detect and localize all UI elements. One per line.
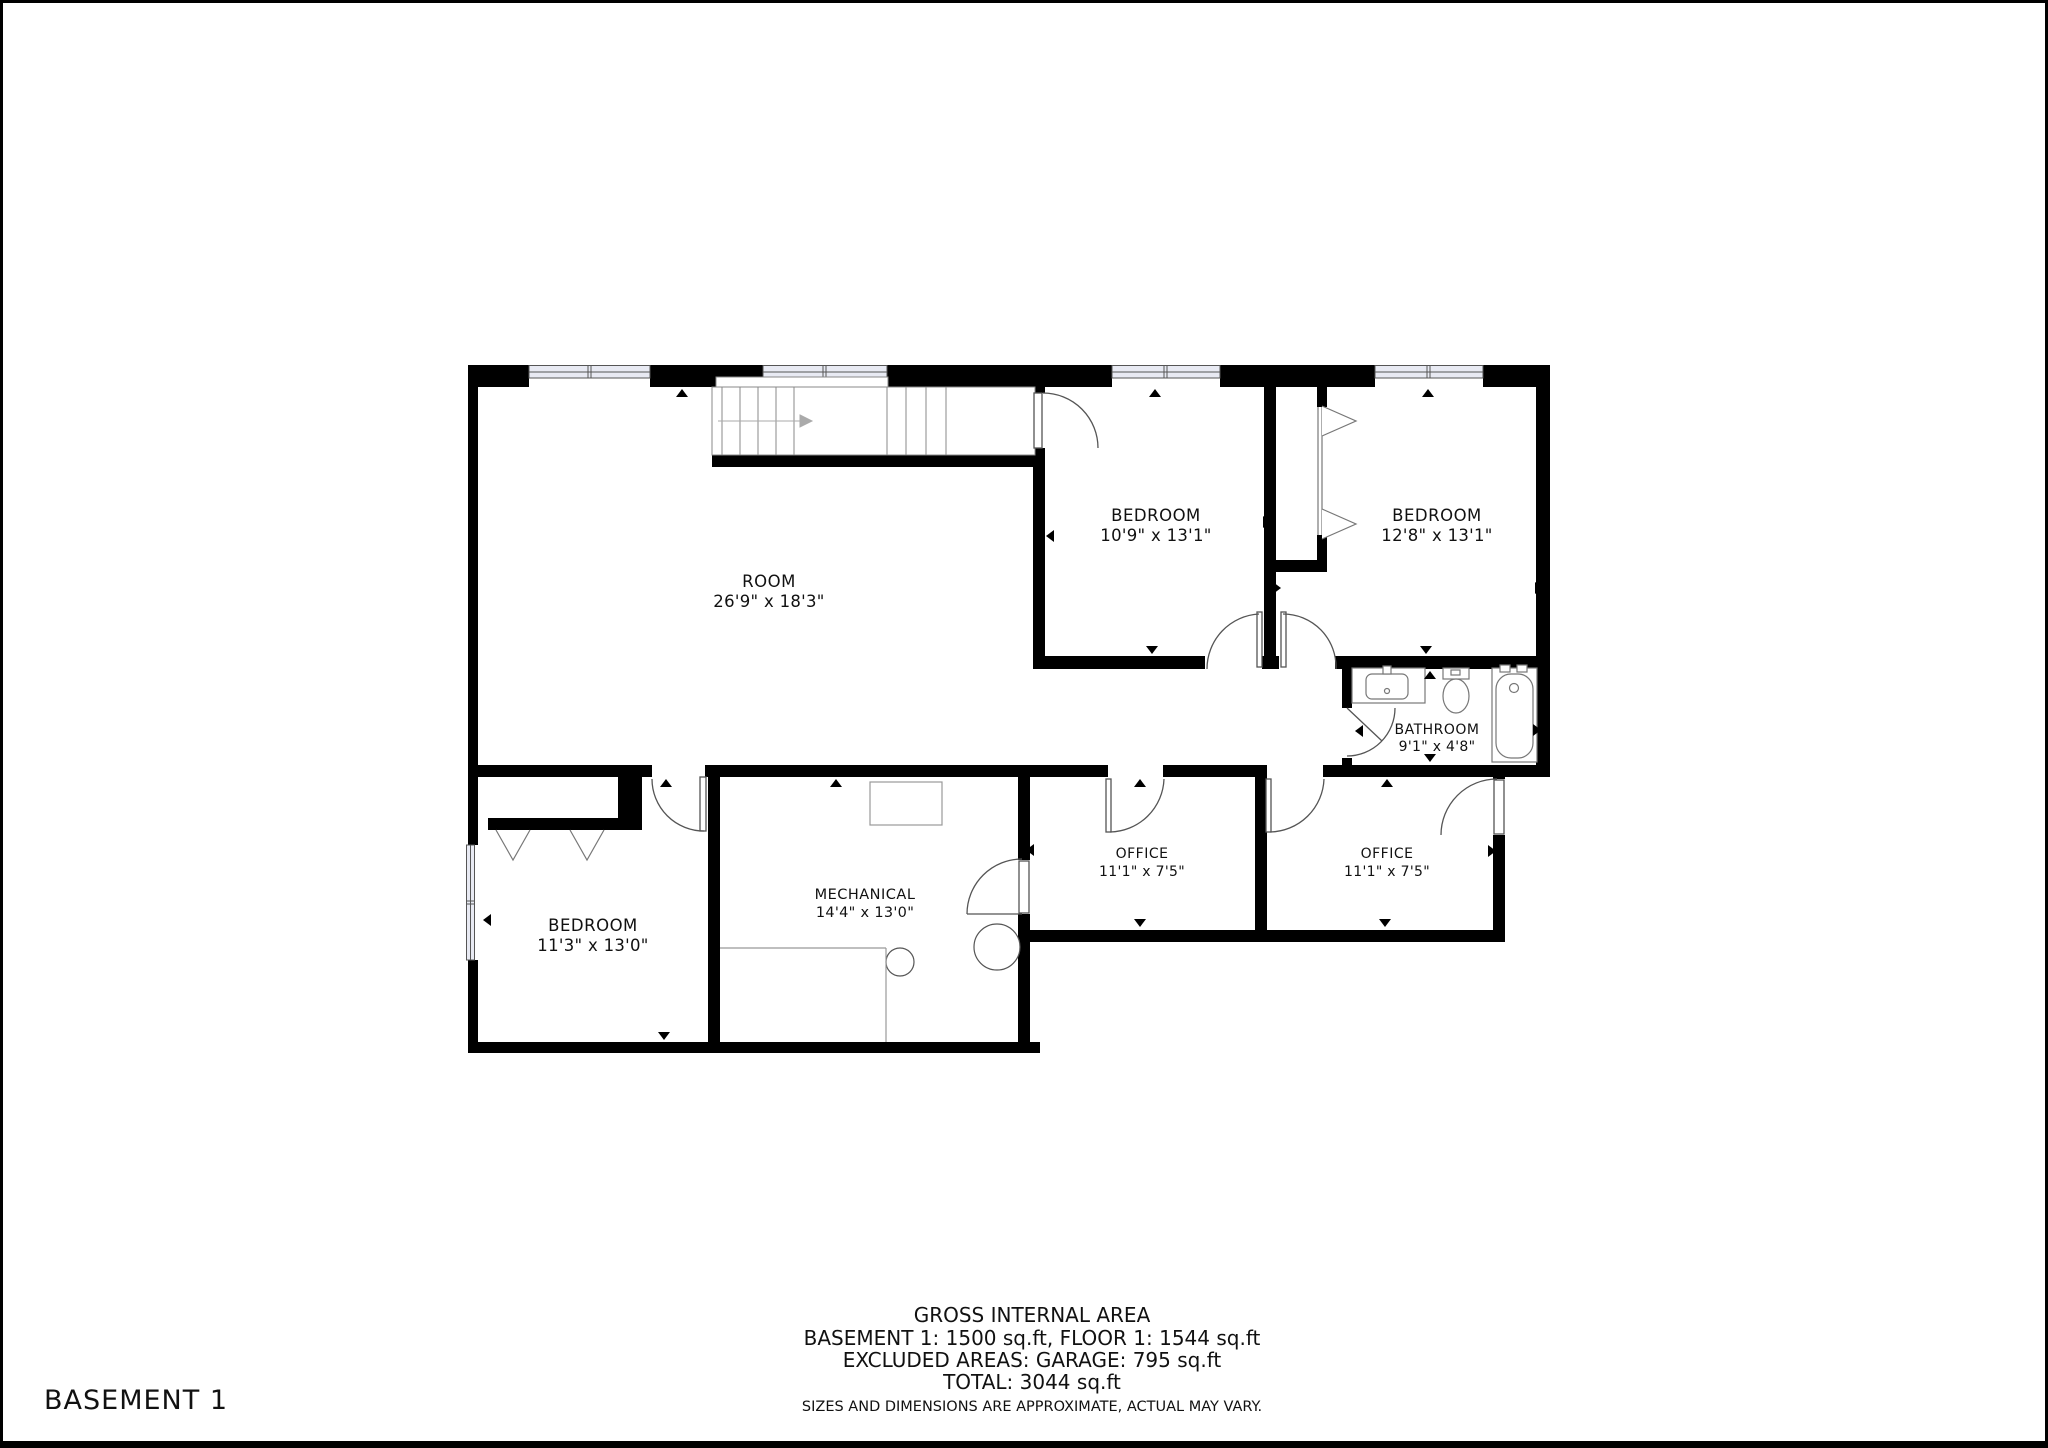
window-icon — [763, 366, 887, 379]
door-icon — [1207, 612, 1262, 669]
stairs-icon — [712, 377, 1035, 455]
room-label-bathroom: BATHROOM 9'1" x 4'8" — [1394, 722, 1479, 755]
room-dims: 11'3" x 13'0" — [537, 936, 648, 955]
room-dims: 26'9" x 18'3" — [713, 592, 824, 611]
room-label-bedroom-2: BEDROOM 12'8" x 13'1" — [1381, 506, 1492, 545]
door-icon — [1034, 393, 1098, 448]
gross-area-summary: GROSS INTERNAL AREA BASEMENT 1: 1500 sq.… — [802, 1303, 1262, 1415]
platform-line — [720, 948, 886, 1042]
floor-plan: ROOM 26'9" x 18'3" BEDROOM 10'9" x 13'1"… — [0, 0, 2048, 1448]
total-area-line: TOTAL: 3044 sq.ft — [942, 1370, 1121, 1394]
room-label-bedroom-1: BEDROOM 10'9" x 13'1" — [1100, 506, 1211, 545]
room-label-bedroom-3: BEDROOM 11'3" x 13'0" — [537, 916, 648, 955]
room-dims: 12'8" x 13'1" — [1381, 526, 1492, 545]
floor-title: BASEMENT 1 — [44, 1385, 228, 1416]
floor-plan-page: ROOM 26'9" x 18'3" BEDROOM 10'9" x 13'1"… — [0, 0, 2048, 1448]
door-icon — [1347, 708, 1395, 756]
room-name: BEDROOM — [1392, 506, 1482, 525]
room-labels: ROOM 26'9" x 18'3" BEDROOM 10'9" x 13'1"… — [537, 506, 1492, 955]
window-icon — [467, 845, 475, 960]
room-dims: 9'1" x 4'8" — [1399, 739, 1476, 755]
gross-area-title: GROSS INTERNAL AREA — [914, 1303, 1151, 1327]
closet-hanger-icon — [496, 830, 604, 860]
room-name: BATHROOM — [1394, 722, 1479, 738]
room-name: OFFICE — [1361, 846, 1414, 862]
disclaimer-text: SIZES AND DIMENSIONS ARE APPROXIMATE, AC… — [802, 1399, 1262, 1415]
room-label-office-1: OFFICE 11'1" x 7'5" — [1099, 846, 1185, 880]
excluded-area-line: EXCLUDED AREAS: GARAGE: 795 sq.ft — [843, 1348, 1222, 1372]
room-dims: 11'1" x 7'5" — [1344, 864, 1430, 880]
room-dims: 10'9" x 13'1" — [1100, 526, 1211, 545]
door-icon — [1281, 612, 1336, 669]
water-heater-icon — [886, 924, 1020, 976]
door-icon — [1441, 779, 1504, 835]
window-icon — [529, 366, 650, 379]
page-border — [0, 0, 2048, 1448]
room-name: OFFICE — [1116, 846, 1169, 862]
doors — [652, 393, 1504, 914]
room-name: BEDROOM — [548, 916, 638, 935]
door-icon — [1266, 779, 1324, 832]
room-name: MECHANICAL — [815, 887, 916, 903]
room-name: BEDROOM — [1111, 506, 1201, 525]
gross-area-line: BASEMENT 1: 1500 sq.ft, FLOOR 1: 1544 sq… — [804, 1326, 1261, 1350]
room-dims: 14'4" x 13'0" — [816, 905, 914, 921]
fixtures — [496, 406, 1537, 1042]
window-icon — [1375, 366, 1483, 379]
room-name: ROOM — [742, 572, 796, 591]
bathtub-icon — [1492, 665, 1537, 762]
room-dims: 11'1" x 7'5" — [1099, 864, 1185, 880]
closet-rail-icon — [1318, 406, 1356, 539]
sink-icon — [1352, 666, 1425, 703]
door-icon — [967, 859, 1029, 914]
window-icon — [1112, 366, 1220, 379]
room-label-room: ROOM 26'9" x 18'3" — [713, 572, 824, 611]
door-icon — [652, 777, 706, 831]
room-label-office-2: OFFICE 11'1" x 7'5" — [1344, 846, 1430, 880]
mechanical-equipment-icon — [870, 782, 942, 825]
toilet-icon — [1443, 668, 1469, 713]
room-label-mechanical: MECHANICAL 14'4" x 13'0" — [815, 887, 916, 921]
